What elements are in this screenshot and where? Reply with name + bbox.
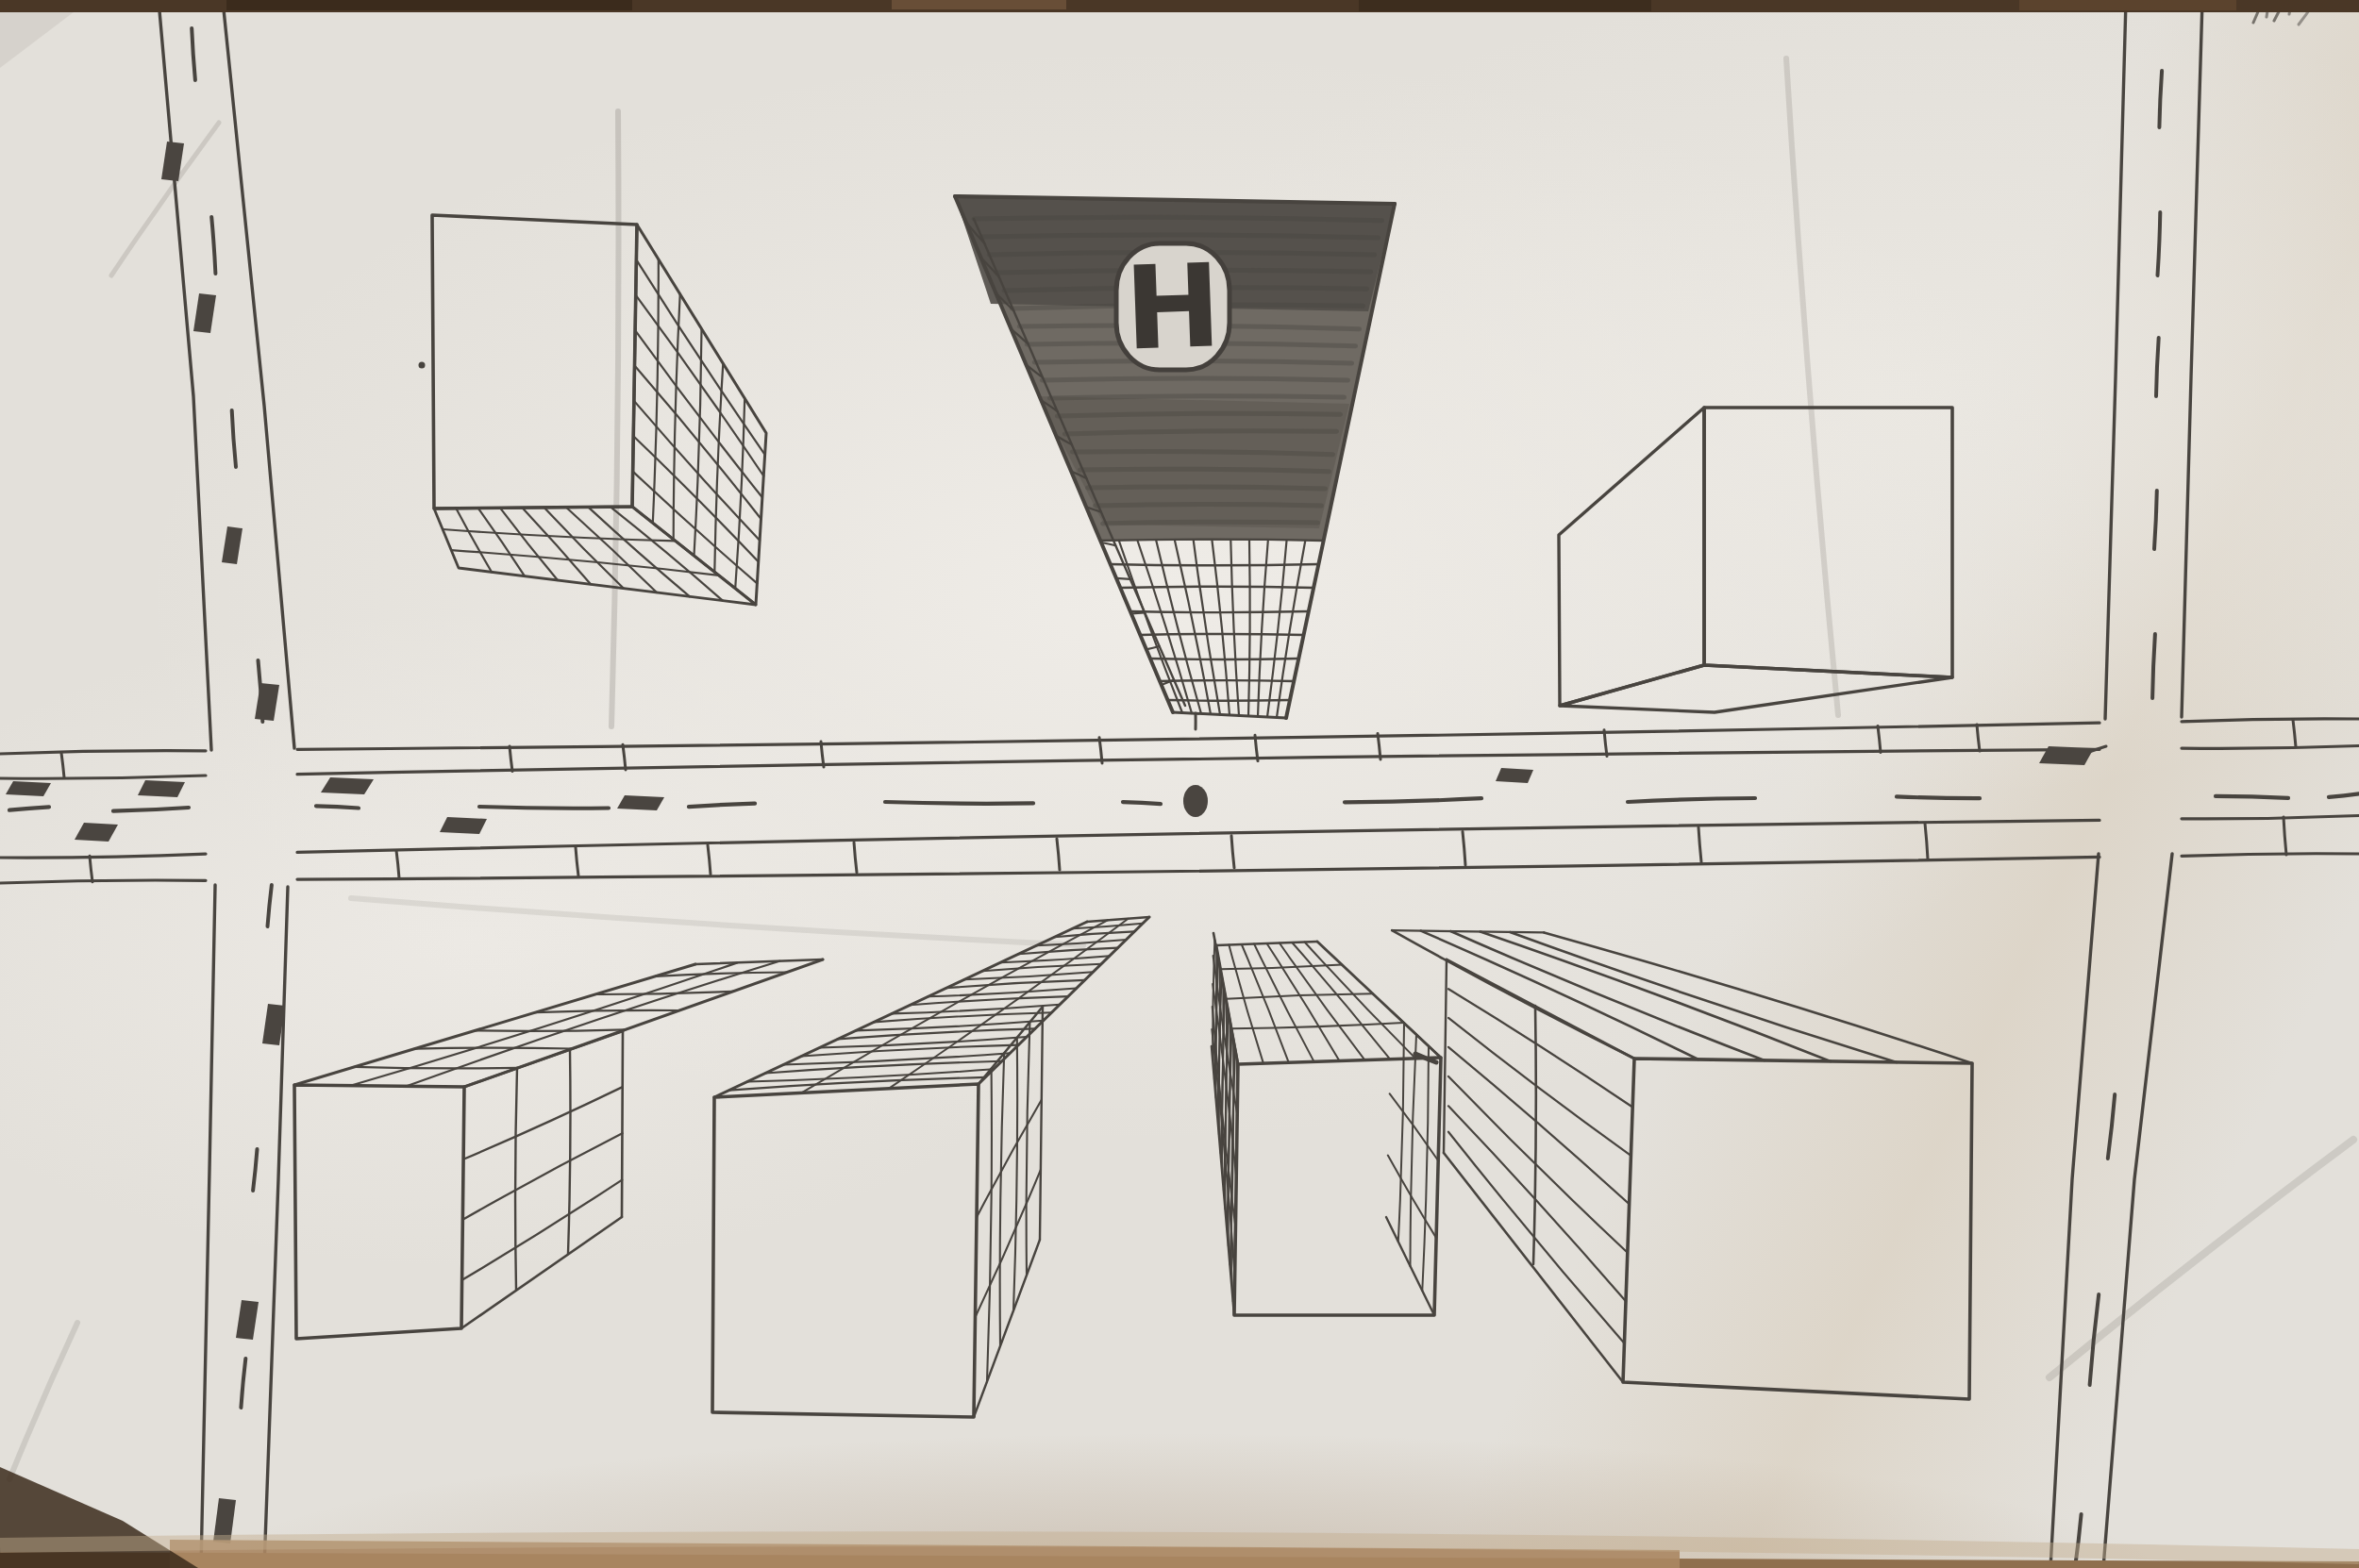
table-wood <box>2019 0 2236 10</box>
pencil-shape <box>714 922 1087 1097</box>
pencil-line <box>1226 993 1373 998</box>
road-line <box>223 0 294 748</box>
road-line <box>2103 854 2172 1568</box>
pencil-line <box>0 751 206 754</box>
pencil-shape <box>1087 917 1149 922</box>
pencil-line <box>946 980 1085 988</box>
pencil-line <box>1049 396 1344 398</box>
pencil-line <box>1604 730 1607 757</box>
pencil-line <box>1130 611 1309 612</box>
pencil-line <box>1267 943 1340 1061</box>
pencil-line <box>1013 1038 1017 1310</box>
pencil-line <box>2182 746 2359 749</box>
pencil-line <box>2108 1094 2115 1159</box>
road-line <box>2050 854 2099 1568</box>
right-cross-street <box>2050 0 2202 1568</box>
left-face-bands <box>1444 959 1634 1382</box>
pencil-line <box>1925 824 1928 859</box>
table-wood <box>892 0 1066 9</box>
pencil-line <box>2284 817 2286 855</box>
pencil-line <box>1140 634 1303 635</box>
base-face-grid <box>434 507 756 605</box>
pencil-line <box>2182 854 2359 857</box>
pencil-line <box>297 857 2100 879</box>
pencil-line <box>566 508 657 592</box>
pencil-line <box>1150 659 1298 659</box>
pencil-line <box>462 1133 622 1220</box>
roof-sweep-lines <box>1392 930 1972 1063</box>
pencil-line <box>1080 469 1330 472</box>
dashed-center-line <box>192 28 272 1568</box>
pencil-line <box>576 847 578 876</box>
pencil-line <box>1231 836 1234 868</box>
pencil-shape <box>1447 959 1634 1059</box>
pencil-line <box>500 508 558 580</box>
pencil-line <box>1042 378 1347 380</box>
road-debris <box>161 142 285 1543</box>
pencil-line <box>9 807 49 809</box>
pencil-line <box>113 808 189 811</box>
front-face <box>294 1085 464 1339</box>
road-debris-blob <box>440 817 487 834</box>
horizontal-road <box>0 719 2359 883</box>
pencil-line <box>1057 413 1340 416</box>
pencil-line <box>885 802 1033 804</box>
pencil-line <box>510 746 512 772</box>
pencil-line <box>2154 491 2157 549</box>
pencil-line <box>1116 578 1130 579</box>
left-face <box>1559 408 1704 706</box>
pencil-line <box>2293 720 2296 747</box>
pencil-line <box>1463 831 1465 864</box>
pencil-line <box>0 776 206 778</box>
front-outline <box>294 1085 464 1339</box>
city-perspective-drawing: H <box>0 0 2359 1568</box>
road-debris-blob <box>222 526 243 564</box>
pencil-line <box>982 964 1101 972</box>
pencil-line <box>1103 522 1318 524</box>
pencil-line <box>929 989 1077 997</box>
pencil-line <box>1398 1023 1404 1242</box>
pencil-line <box>9 1323 77 1479</box>
pencil-line <box>479 807 609 809</box>
road-debris-blob <box>617 795 664 810</box>
pencil-line <box>568 1049 570 1254</box>
road-line <box>159 0 211 750</box>
road-line <box>201 885 215 1568</box>
pencil-line <box>2182 719 2359 722</box>
pencil-line <box>1977 725 1980 751</box>
helipad: H <box>1116 239 1230 375</box>
pencil-line <box>297 749 2100 774</box>
pencil-line <box>61 753 64 777</box>
pencil-line <box>611 111 619 726</box>
pencil-line <box>463 1087 623 1159</box>
pencil-line <box>1160 680 1294 681</box>
building-bottom-2 <box>712 917 1149 1417</box>
pencil-line <box>1120 587 1313 588</box>
building-top-left-tower <box>419 215 767 605</box>
road-debris-blob <box>6 781 51 796</box>
pencil-line <box>2075 1514 2082 1568</box>
pencil-line <box>1111 564 1319 565</box>
center-road-dot <box>1183 785 1208 817</box>
pencil-line <box>1123 802 1161 804</box>
pencil-line <box>111 123 219 275</box>
pencil-line <box>2152 634 2155 698</box>
front-face <box>712 1084 979 1417</box>
road-debris-blob <box>321 777 374 794</box>
pencil-line <box>192 28 195 80</box>
pencil-line <box>1018 948 1117 955</box>
pencil-shape <box>461 1217 622 1328</box>
pencil-line <box>1267 541 1287 717</box>
pencil-line <box>90 856 92 882</box>
pencil-line <box>2158 212 2161 275</box>
pencil-line <box>1292 942 1390 1059</box>
pencil-line <box>462 1180 623 1280</box>
pencil-shape <box>464 1031 623 1087</box>
front-face <box>1234 1058 1441 1315</box>
road-debris-blob <box>255 683 279 721</box>
pencil-line <box>1000 956 1110 962</box>
pencil-line <box>1027 1022 1030 1275</box>
pencil-line <box>1131 612 1145 613</box>
pencil-line <box>415 1048 573 1049</box>
pencil-line <box>1628 798 1755 802</box>
front-outline <box>1623 1059 1972 1399</box>
road-line <box>264 887 288 1568</box>
pencil-line <box>0 880 206 883</box>
roof-band <box>294 959 823 1087</box>
pencil-line <box>297 723 2100 749</box>
pencil-line <box>351 898 1083 945</box>
photo-of-pencil-drawing: H <box>0 0 2359 1568</box>
roof-outline <box>432 215 637 509</box>
pencil-line <box>211 217 215 274</box>
pencil-shape <box>974 1240 1040 1417</box>
pencil-line <box>241 1359 245 1408</box>
pencil-line <box>2159 71 2162 127</box>
pencil-line <box>2182 816 2359 819</box>
pencil-line <box>478 509 525 576</box>
pencil-line <box>515 1068 517 1290</box>
pencil-line <box>1878 726 1881 753</box>
pencil-line <box>1422 1046 1429 1291</box>
helipad-h-letter: H <box>1123 239 1224 375</box>
pencil-line <box>689 804 755 808</box>
road-line <box>2182 0 2202 717</box>
building-bottom-1 <box>294 959 823 1339</box>
front-face <box>1623 1059 1972 1399</box>
pencil-line <box>987 1069 992 1382</box>
building-bottom-3 <box>1212 933 1441 1315</box>
pencil-line <box>1230 541 1239 716</box>
pencil-line <box>976 1170 1041 1317</box>
building-top-right-box <box>1559 408 1952 712</box>
pencil-line <box>977 1100 1042 1217</box>
pencil-shape <box>1040 1007 1043 1240</box>
pencil-shape <box>1444 959 1447 1153</box>
front-outline <box>712 1084 979 1417</box>
pencil-line <box>595 992 733 994</box>
face-outline <box>1559 408 1704 706</box>
corner-shadow <box>0 1467 198 1568</box>
pencil-line <box>1168 700 1291 701</box>
base-face <box>1560 665 1952 712</box>
road-debris-blob <box>138 780 185 797</box>
pencil-line <box>355 1067 518 1069</box>
pencil-line <box>1000 1053 1005 1346</box>
building-bottom-4 <box>1392 930 1972 1399</box>
pencil-line <box>1448 1047 1630 1205</box>
sidewalk-top <box>0 719 2359 778</box>
pencil-line <box>1242 944 1289 1062</box>
pencil-line <box>729 1077 985 1091</box>
side-face-grid <box>632 225 766 605</box>
sidewalk-bottom <box>0 816 2359 884</box>
front-outline <box>1234 1058 1441 1315</box>
pencil-line <box>535 1010 679 1012</box>
pencil-line <box>253 1149 257 1191</box>
pencil-line <box>623 744 626 770</box>
pencil-line <box>1411 1035 1417 1267</box>
pencil-line <box>2156 338 2159 396</box>
road-debris-blob <box>2039 746 2094 765</box>
pencil-line <box>1138 541 1193 713</box>
pencil-line <box>1897 796 1980 798</box>
pencil-line <box>708 845 711 875</box>
pencil-line <box>1345 798 1481 802</box>
pencil-line <box>656 973 788 976</box>
road-debris-blob <box>75 823 118 842</box>
pencil-line <box>1096 505 1322 506</box>
pencil-line <box>1698 827 1701 862</box>
pencil-line <box>910 996 1068 1005</box>
pencil-line <box>475 1029 626 1031</box>
pencil-shape <box>1392 930 1544 932</box>
pencil-line <box>1786 58 1838 715</box>
road-line <box>2105 0 2126 719</box>
pencil-line <box>1057 839 1060 870</box>
pencil-line <box>1258 541 1268 717</box>
pencil-line <box>1100 540 1324 541</box>
pencil-shape <box>622 1031 623 1217</box>
roof-band-grid <box>1216 942 1441 1064</box>
pencil-line <box>316 806 359 808</box>
road-debris-blob <box>236 1300 259 1340</box>
table-wood <box>1359 0 1651 11</box>
pencil-line <box>396 851 399 878</box>
face-outline <box>1560 665 1952 712</box>
pencil-line <box>232 410 236 467</box>
pencil-shape <box>695 959 823 964</box>
pencil-line <box>2329 793 2359 796</box>
pencil-line <box>1248 541 1250 716</box>
pencil-line <box>964 972 1094 979</box>
hospital-window-grid <box>1100 540 1324 729</box>
pencil-line <box>714 363 723 572</box>
pencil-line <box>2216 796 2288 798</box>
road-debris-blob <box>1496 768 1533 783</box>
side-face-bands <box>461 1031 623 1328</box>
right-face-grid <box>974 1007 1043 1417</box>
road-debris-blob <box>193 293 216 333</box>
pencil-line <box>1088 487 1326 489</box>
roof-face <box>432 215 637 509</box>
pencil-line <box>854 842 857 873</box>
pencil-line <box>297 820 2100 852</box>
pencil-line <box>611 507 723 601</box>
building-hospital-tower: H <box>955 196 1395 729</box>
stray-pencil-dot <box>419 362 426 369</box>
pencil-line <box>0 854 206 858</box>
pencil-line <box>268 885 272 926</box>
table-wood <box>226 0 632 10</box>
